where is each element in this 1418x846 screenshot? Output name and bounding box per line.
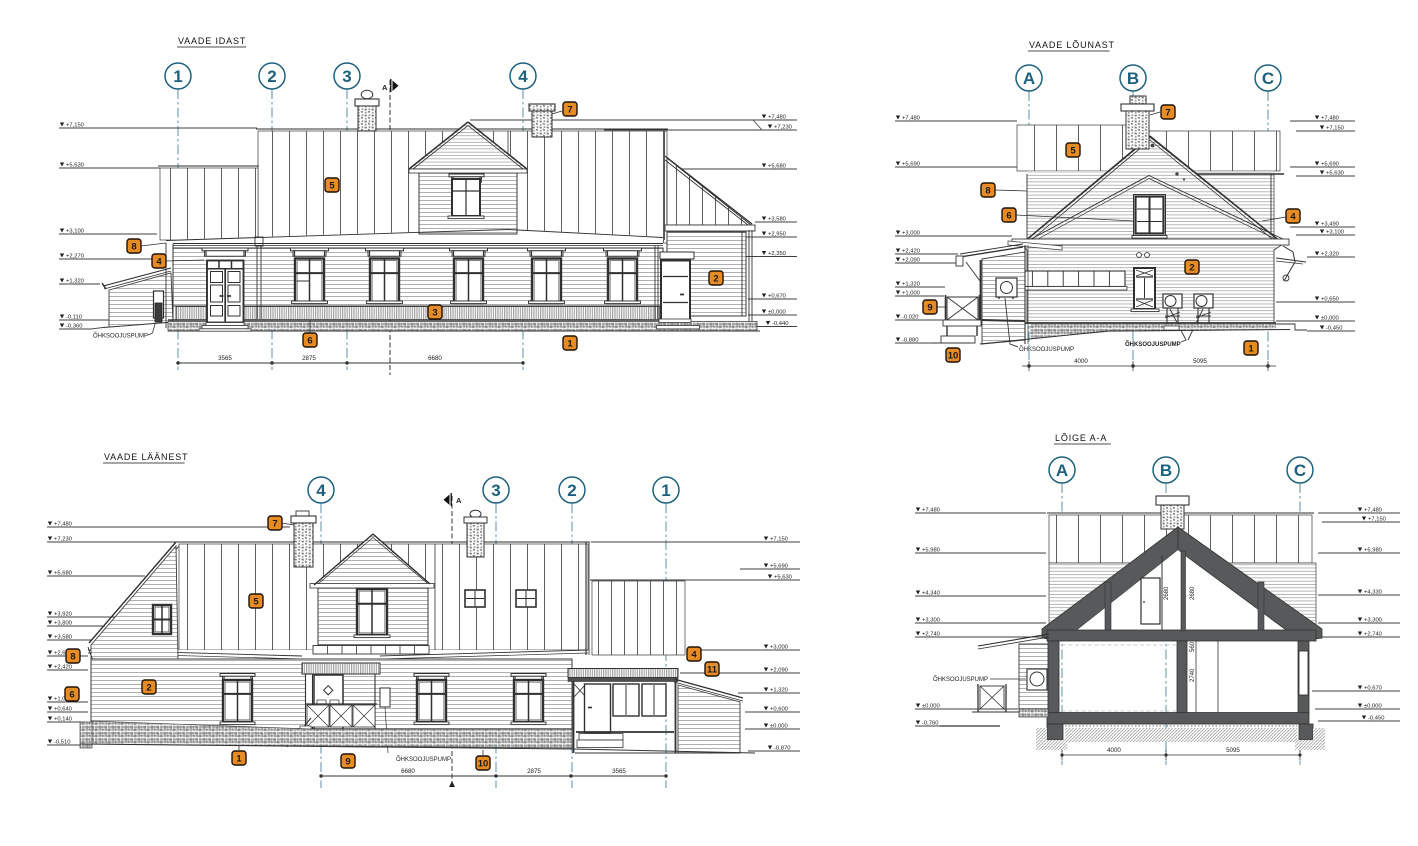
svg-text:1: 1	[661, 481, 670, 500]
svg-text:8: 8	[131, 241, 136, 252]
svg-text:2875: 2875	[527, 768, 541, 775]
svg-text:1: 1	[567, 338, 573, 349]
svg-text:2: 2	[567, 481, 576, 500]
svg-text:5: 5	[1070, 145, 1076, 156]
svg-text:5095: 5095	[1193, 358, 1207, 365]
svg-text:ÕHKSOOJUSPUMP: ÕHKSOOJUSPUMP	[1019, 346, 1074, 353]
svg-text:A: A	[1056, 461, 1068, 480]
svg-text:C: C	[1262, 69, 1274, 88]
svg-text:B: B	[1127, 69, 1139, 88]
svg-text:4: 4	[518, 67, 528, 86]
svg-text:9: 9	[927, 302, 932, 313]
svg-text:VAADE LÕUNAST: VAADE LÕUNAST	[1029, 40, 1115, 50]
svg-text:4: 4	[316, 481, 326, 500]
svg-text:3: 3	[342, 67, 351, 86]
svg-text:5: 5	[329, 180, 335, 191]
svg-text:2740: 2740	[1190, 668, 1196, 682]
svg-text:2875: 2875	[302, 355, 316, 362]
svg-text:4: 4	[1290, 211, 1296, 222]
svg-text:8: 8	[70, 651, 75, 662]
svg-text:560: 560	[1190, 641, 1196, 652]
svg-text:2: 2	[267, 67, 276, 86]
svg-text:5095: 5095	[1226, 747, 1240, 754]
svg-text:7: 7	[567, 104, 572, 115]
svg-text:3565: 3565	[218, 355, 232, 362]
svg-text:ÕHKSOOJUSPUMP: ÕHKSOOJUSPUMP	[1125, 341, 1181, 348]
svg-text:B: B	[1160, 461, 1172, 480]
svg-text:8: 8	[985, 185, 990, 196]
svg-text:6: 6	[69, 689, 74, 700]
svg-text:VAADE IDAST: VAADE IDAST	[178, 36, 246, 46]
svg-text:4000: 4000	[1074, 358, 1088, 365]
svg-text:A: A	[1023, 69, 1035, 88]
svg-text:6680: 6680	[428, 355, 442, 362]
svg-text:4: 4	[691, 649, 697, 660]
svg-text:6: 6	[307, 335, 312, 346]
svg-text:4000: 4000	[1107, 747, 1121, 754]
svg-text:LÕIGE A-A: LÕIGE A-A	[1055, 433, 1107, 443]
svg-text:3: 3	[432, 307, 437, 318]
svg-text:ÕHKSOOJUSPUMP: ÕHKSOOJUSPUMP	[396, 756, 451, 763]
svg-text:1: 1	[173, 67, 182, 86]
svg-text:10: 10	[478, 758, 489, 769]
svg-text:7: 7	[272, 518, 277, 529]
svg-text:5: 5	[253, 596, 259, 607]
svg-text:2: 2	[1189, 262, 1194, 273]
svg-text:11: 11	[707, 664, 718, 675]
svg-text:VAADE LÄÄNEST: VAADE LÄÄNEST	[104, 452, 188, 462]
svg-text:ÕHKSOOJUSPUMP: ÕHKSOOJUSPUMP	[933, 676, 988, 683]
svg-text:1: 1	[1248, 343, 1254, 354]
svg-text:A: A	[382, 83, 388, 92]
svg-text:7: 7	[1165, 107, 1170, 118]
svg-text:3565: 3565	[612, 768, 626, 775]
svg-text:2680: 2680	[1190, 586, 1196, 600]
svg-text:3: 3	[491, 481, 500, 500]
svg-text:A: A	[456, 496, 462, 505]
svg-text:6680: 6680	[401, 768, 415, 775]
svg-text:6: 6	[1006, 210, 1011, 221]
svg-text:4: 4	[156, 256, 162, 267]
svg-text:ÕHKSOOJUSPUMP: ÕHKSOOJUSPUMP	[93, 333, 148, 340]
svg-text:10: 10	[948, 350, 959, 361]
svg-text:C: C	[1294, 461, 1306, 480]
svg-text:9: 9	[345, 756, 350, 767]
svg-text:1: 1	[236, 753, 242, 764]
svg-text:2680: 2680	[1164, 586, 1170, 600]
svg-text:2: 2	[146, 682, 151, 693]
svg-text:2: 2	[713, 273, 718, 284]
